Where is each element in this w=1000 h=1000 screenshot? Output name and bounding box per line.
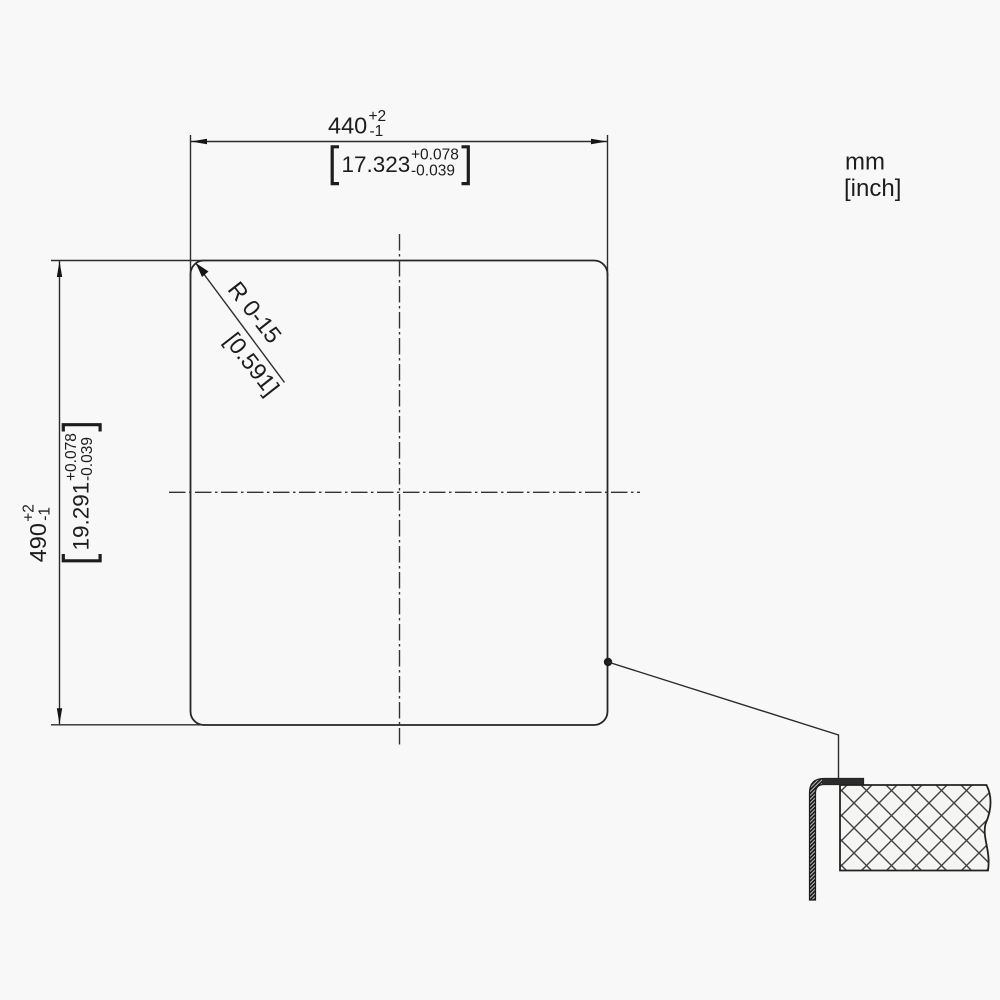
svg-text:490: 490 [25,523,51,562]
svg-text:-0.039: -0.039 [79,437,96,481]
svg-text:-1: -1 [370,123,384,140]
svg-text:440: 440 [328,113,367,139]
svg-text:-0.039: -0.039 [411,163,455,180]
svg-text:[inch]: [inch] [844,175,901,202]
svg-text:+2: +2 [21,504,38,522]
svg-text:17.323: 17.323 [342,152,411,177]
svg-text:19.291: 19.291 [69,482,94,551]
svg-text:+0.078: +0.078 [63,433,80,481]
svg-text:mm: mm [845,149,885,176]
svg-text:+0.078: +0.078 [411,147,459,164]
svg-text:-1: -1 [37,507,54,521]
